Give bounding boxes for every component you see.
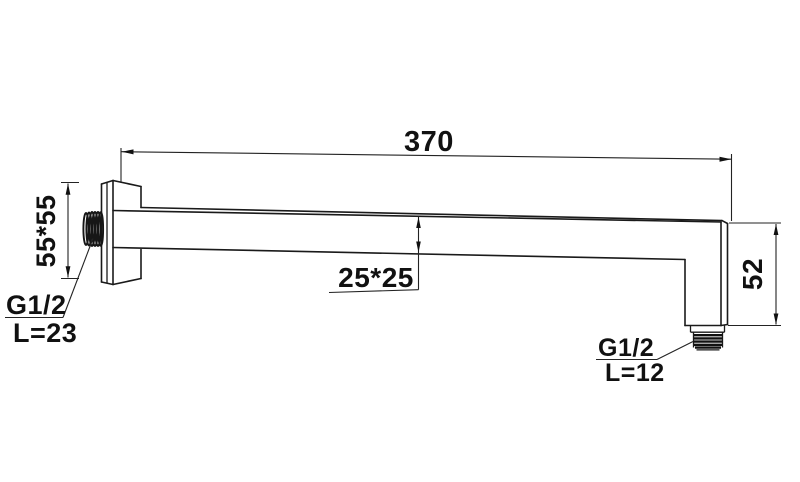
outlet-thread-length-text: L=12 (605, 359, 665, 387)
dimension-55x55: 55*55 (31, 183, 79, 279)
shower-arm-technical-drawing: 370 55*55 25*25 52 (0, 0, 800, 482)
outlet-thread-size-text: G1/2 (598, 334, 654, 362)
arrow-down-icon (66, 266, 71, 277)
arrow-down-icon (416, 242, 421, 253)
arrow-left-icon (122, 149, 134, 154)
elbow-drop (685, 221, 728, 326)
wall-flange (102, 181, 142, 285)
dim-52-text: 52 (737, 258, 768, 290)
wall-thread (83, 212, 103, 246)
arrow-up-icon (416, 217, 421, 228)
dim-55x55-text: 55*55 (31, 194, 61, 267)
wall-thread-size-text: G1/2 (6, 290, 67, 320)
arrow-up-icon (66, 184, 71, 195)
arrow-down-icon (774, 314, 779, 325)
arrow-up-icon (774, 224, 779, 235)
outlet-thread (691, 326, 725, 350)
dimension-370: 370 (121, 126, 732, 221)
wall-thread-length-text: L=23 (13, 318, 77, 348)
dimension-52: 52 (728, 223, 781, 326)
dim-370-text: 370 (404, 126, 454, 158)
arm-tube (113, 208, 722, 260)
technical-drawing-page: 370 55*55 25*25 52 (0, 0, 800, 482)
dimension-25x25: 25*25 (329, 217, 421, 293)
arrow-right-icon (720, 157, 732, 162)
dim-25x25-text: 25*25 (338, 262, 414, 293)
label-outlet-thread: G1/2 L=12 (596, 334, 693, 387)
